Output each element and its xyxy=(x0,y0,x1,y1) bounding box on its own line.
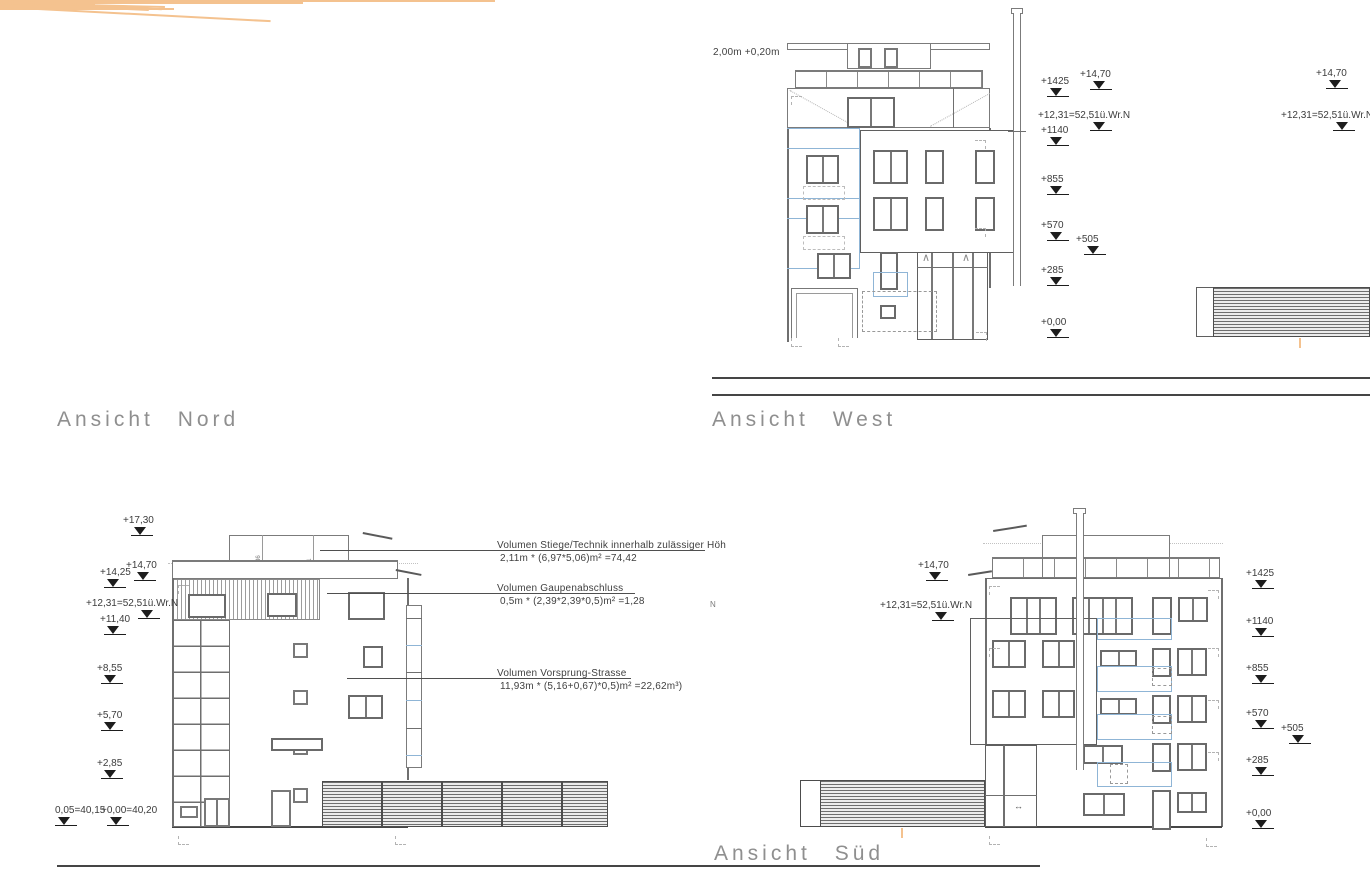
elevation-flag-icon xyxy=(1252,580,1274,590)
elevation-flag-icon xyxy=(1252,767,1274,777)
markers-sued-right: +1425+1140+855+570+505+285+0,00 xyxy=(0,0,1370,881)
elevation-marker: +570 xyxy=(1246,709,1274,730)
elevation-flag-icon xyxy=(1252,720,1274,730)
elevation-marker: +1140 xyxy=(1246,617,1274,638)
elevation-marker: +855 xyxy=(1246,664,1274,685)
elevation-marker-value: +570 xyxy=(1246,709,1274,719)
elevation-marker: +285 xyxy=(1246,756,1274,777)
elevation-marker-value: +505 xyxy=(1281,724,1311,734)
elevation-flag-icon xyxy=(1252,820,1274,830)
elevation-marker-value: +1140 xyxy=(1246,617,1274,627)
elevation-flag-icon xyxy=(1252,628,1274,638)
elevation-flag-icon xyxy=(1289,735,1311,745)
elevation-marker: +505 xyxy=(1281,724,1311,745)
elevation-marker-value: +855 xyxy=(1246,664,1274,674)
elevation-marker-value: +1425 xyxy=(1246,569,1274,579)
elevation-sheet: 2,00m +0,20m xyxy=(0,0,1370,881)
elevation-marker-value: +0,00 xyxy=(1246,809,1274,819)
elevation-flag-icon xyxy=(1252,675,1274,685)
elevation-marker: +0,00 xyxy=(1246,809,1274,830)
elevation-marker: +1425 xyxy=(1246,569,1274,590)
elevation-marker-value: +285 xyxy=(1246,756,1274,766)
